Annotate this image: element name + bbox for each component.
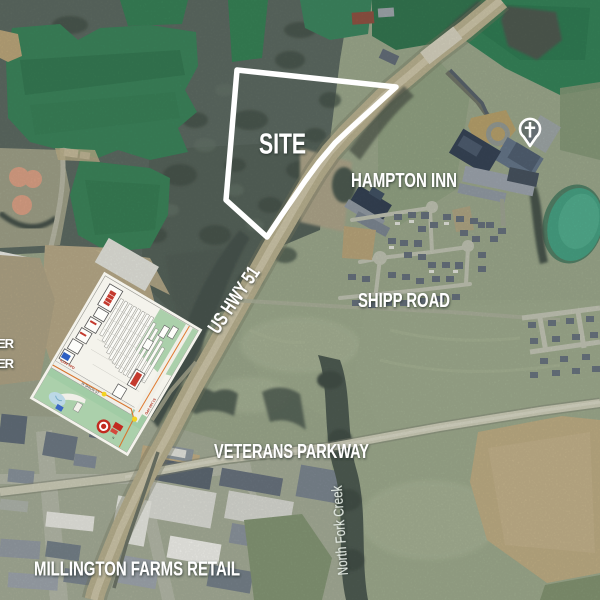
svg-text:HAMPTON INN: HAMPTON INN (351, 170, 457, 192)
svg-text:SHIPP ROAD: SHIPP ROAD (358, 290, 450, 312)
svg-text:ER: ER (0, 356, 15, 371)
svg-text:VETERANS PARKWAY: VETERANS PARKWAY (214, 441, 369, 463)
svg-text:SITE: SITE (259, 129, 306, 161)
svg-text:ER: ER (0, 336, 15, 351)
svg-text:MILLINGTON FARMS RETAIL: MILLINGTON FARMS RETAIL (34, 558, 240, 581)
